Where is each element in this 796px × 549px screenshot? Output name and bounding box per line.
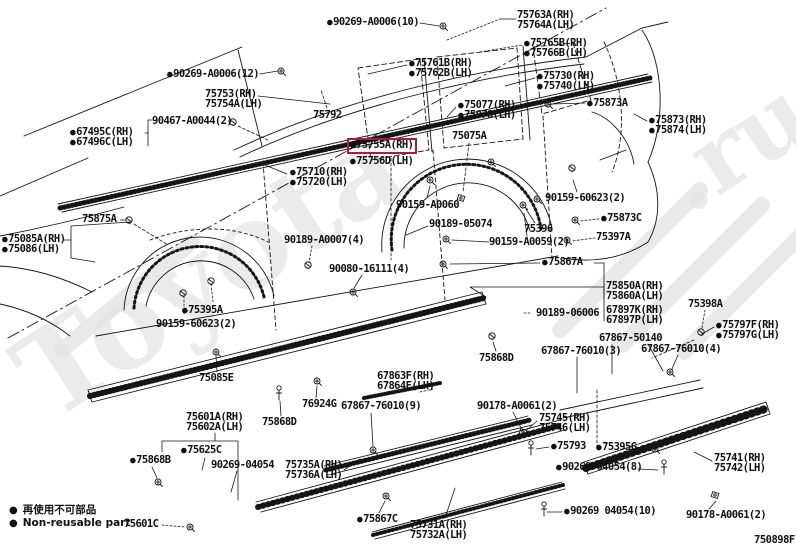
non-reusable-bullet-icon: ● xyxy=(182,305,187,316)
part-label[interactable]: 75397A xyxy=(596,232,630,242)
part-number: 90178-A0061(2) xyxy=(477,400,557,412)
non-reusable-bullet-icon: ● xyxy=(596,442,601,453)
part-label[interactable]: 75742(LH) xyxy=(714,463,766,473)
part-label[interactable]: 67867-76010(3) xyxy=(541,346,621,356)
part-number: 67867-76010(4) xyxy=(641,343,721,355)
part-number: 90189-05074 xyxy=(429,218,492,230)
part-number: 75868D xyxy=(262,416,296,428)
part-label[interactable]: ●75867C xyxy=(357,514,397,525)
part-number: 75085E xyxy=(199,372,233,384)
part-number: 75875A xyxy=(82,213,116,225)
part-label[interactable]: ●75867A xyxy=(542,257,582,268)
part-label[interactable]: ●90269-04054(8) xyxy=(556,462,642,473)
part-label[interactable]: ●75873C xyxy=(601,213,641,224)
part-number: 75075A xyxy=(452,130,486,142)
part-label[interactable]: 75754A(LH) xyxy=(205,99,262,109)
legend-text-en: Non-reusable part xyxy=(23,517,131,530)
part-number: 75395G xyxy=(602,441,636,453)
part-number: 75746(LH) xyxy=(539,422,591,434)
non-reusable-bullet-icon: ● xyxy=(409,68,414,79)
part-number: 75868B xyxy=(136,454,170,466)
part-number: 90269 04054(10) xyxy=(570,505,656,517)
part-label[interactable]: 75396 xyxy=(524,224,553,234)
part-number: 75736A(LH) xyxy=(285,469,342,481)
part-number: 75867C xyxy=(363,513,397,525)
part-number: 67864F(LH) xyxy=(377,380,434,392)
part-number: 75732A(LH) xyxy=(410,529,467,541)
non-reusable-bullet-icon: ● xyxy=(290,177,295,188)
figure-code: 750898F xyxy=(754,535,795,546)
part-label[interactable]: 67897P(LH) xyxy=(606,315,663,325)
part-label[interactable]: 75875A xyxy=(82,214,116,224)
part-label[interactable]: ●75797G(LH) xyxy=(716,330,779,341)
legend-row-jp: ● 再使用不可部品 xyxy=(9,504,130,517)
legend: ● 再使用不可部品 ● Non-reusable part xyxy=(9,504,130,530)
part-label[interactable]: 67867-76010(4) xyxy=(641,344,721,354)
part-number: 90178-A0061(2) xyxy=(686,509,766,521)
non-reusable-bullet-icon: ● xyxy=(564,506,569,517)
part-number: 90189-A0007(4) xyxy=(284,234,364,246)
non-reusable-bullet-icon: ● xyxy=(130,455,135,466)
part-number: 75874(LH) xyxy=(655,124,707,136)
non-reusable-bullet-icon: ● xyxy=(524,48,529,59)
parts-diagram: Toyota .ru xyxy=(0,0,796,549)
part-label[interactable]: ●75756D(LH) xyxy=(350,156,413,167)
part-number: 75602A(LH) xyxy=(186,421,243,433)
part-label[interactable]: ●75762B(LH) xyxy=(409,68,472,79)
part-number: 75395A xyxy=(188,304,222,316)
non-reusable-bullet-icon: ● xyxy=(9,517,18,530)
part-label[interactable]: 75398A xyxy=(688,299,722,309)
part-label[interactable]: ●75395A xyxy=(182,305,222,316)
part-label[interactable]: ●75625C xyxy=(181,445,221,456)
part-label[interactable]: 76924G xyxy=(302,399,336,409)
part-number: 90269-A0006(12) xyxy=(173,68,259,80)
part-label[interactable]: ●75395G xyxy=(596,442,636,453)
part-number: 75868D xyxy=(479,352,513,364)
part-label[interactable]: 75602A(LH) xyxy=(186,422,243,432)
part-label[interactable]: 75868D xyxy=(479,353,513,363)
part-number: 75396 xyxy=(524,223,553,235)
part-label[interactable]: 75736A(LH) xyxy=(285,470,342,480)
non-reusable-bullet-icon: ● xyxy=(357,514,362,525)
part-label[interactable]: ●90269-A0006(10) xyxy=(327,17,419,28)
part-label[interactable]: ●75793 xyxy=(551,441,586,452)
non-reusable-bullet-icon: ● xyxy=(601,213,606,224)
non-reusable-bullet-icon: ● xyxy=(542,257,547,268)
legend-text-jp: 再使用不可部品 xyxy=(23,504,97,517)
part-number: 90159-60623(2) xyxy=(545,192,625,204)
part-number: 75867A xyxy=(548,256,582,268)
non-reusable-bullet-icon: ● xyxy=(556,462,561,473)
part-number: 75756D(LH) xyxy=(356,155,413,167)
part-number: 75860A(LH) xyxy=(606,290,663,302)
part-number: 75625C xyxy=(187,444,221,456)
non-reusable-bullet-icon: ● xyxy=(458,110,463,121)
non-reusable-bullet-icon: ● xyxy=(537,81,542,92)
part-number: 75766B(LH) xyxy=(530,47,587,59)
part-number: 75398A xyxy=(688,298,722,310)
part-number: 90269-04054 xyxy=(211,459,274,471)
part-number: 90080-16111(4) xyxy=(329,263,409,275)
part-number: 75764A(LH) xyxy=(517,19,574,31)
part-label[interactable]: 90159-A0059(2) xyxy=(489,237,569,247)
part-label[interactable]: 75860A(LH) xyxy=(606,291,663,301)
part-number: 75793 xyxy=(557,440,586,452)
part-label[interactable]: ●90269 04054(10) xyxy=(564,506,656,517)
non-reusable-bullet-icon: ● xyxy=(350,156,355,167)
part-number: 75762B(LH) xyxy=(415,67,472,79)
part-number: 90467-A0044(2) xyxy=(152,115,232,127)
non-reusable-bullet-icon: ● xyxy=(587,98,592,109)
part-label[interactable]: ●75766B(LH) xyxy=(524,48,587,59)
part-label[interactable]: ●75740(LH) xyxy=(537,81,595,92)
part-label[interactable]: 67867-50140 xyxy=(599,333,662,343)
part-label[interactable]: 90189-06006 xyxy=(536,308,599,318)
part-number: 75797G(LH) xyxy=(722,329,779,341)
part-label[interactable]: ●75086(LH) xyxy=(2,244,60,255)
part-number: 75742(LH) xyxy=(714,462,766,474)
part-number: 75086(LH) xyxy=(8,243,60,255)
non-reusable-bullet-icon: ● xyxy=(2,244,7,255)
non-reusable-bullet-icon: ● xyxy=(327,17,332,28)
part-label[interactable]: 75746(LH) xyxy=(539,423,591,433)
part-label[interactable]: 67867-76010(9) xyxy=(341,401,421,411)
part-label[interactable]: 75085E xyxy=(199,373,233,383)
part-label[interactable]: 90159-60623(2) xyxy=(156,319,236,329)
part-label[interactable]: 90178-A0061(2) xyxy=(686,510,766,520)
part-label[interactable]: ●90269-A0006(12) xyxy=(167,69,259,80)
part-number: 90159-A0060 xyxy=(396,199,459,211)
part-label[interactable]: 90189-A0007(4) xyxy=(284,235,364,245)
non-reusable-bullet-icon: ● xyxy=(70,137,75,148)
part-number: 75720(LH) xyxy=(296,176,348,188)
part-label[interactable]: ●75874(LH) xyxy=(649,125,707,136)
non-reusable-bullet-icon: ● xyxy=(167,69,172,80)
non-reusable-bullet-icon: ● xyxy=(9,504,18,517)
part-number: 67867-76010(3) xyxy=(541,345,621,357)
part-label[interactable]: 90080-16111(4) xyxy=(329,264,409,274)
part-label[interactable]: ●75078(LH) xyxy=(458,110,516,121)
part-number: 90269-04054(8) xyxy=(562,461,642,473)
legend-row-en: ● Non-reusable part xyxy=(9,517,130,530)
part-label[interactable]: 75732A(LH) xyxy=(410,530,467,540)
part-label[interactable]: 75792 xyxy=(313,110,342,120)
part-number: 90159-60623(2) xyxy=(156,318,236,330)
non-reusable-bullet-icon: ● xyxy=(716,330,721,341)
part-label[interactable]: 90269-04054 xyxy=(211,460,274,470)
part-number: 67897P(LH) xyxy=(606,314,663,326)
part-number: 75755A(RH) xyxy=(356,139,413,151)
part-number: 67496C(LH) xyxy=(76,136,133,148)
part-label[interactable]: 90159-A0060 xyxy=(396,200,459,210)
part-number: 75792 xyxy=(313,109,342,121)
part-number: 75873A xyxy=(593,97,627,109)
part-number: 90159-A0059(2) xyxy=(489,236,569,248)
part-label[interactable]: 90178-A0061(2) xyxy=(477,401,557,411)
part-label[interactable]: ●75873A xyxy=(587,98,627,109)
part-label[interactable]: 75075A xyxy=(452,131,486,141)
part-label[interactable]: 90467-A0044(2) xyxy=(152,116,232,126)
part-number: 75078(LH) xyxy=(464,109,516,121)
part-number: 90269-A0006(10) xyxy=(333,16,419,28)
part-label[interactable]: 67864F(LH) xyxy=(377,381,434,391)
part-number: 75397A xyxy=(596,231,630,243)
part-number: 67867-76010(9) xyxy=(341,400,421,412)
part-label[interactable]: 90159-60623(2) xyxy=(545,193,625,203)
non-reusable-bullet-icon: ● xyxy=(551,441,556,452)
part-label[interactable]: 75868D xyxy=(262,417,296,427)
part-label[interactable]: 90189-05074 xyxy=(429,219,492,229)
part-number: 76924G xyxy=(302,398,336,410)
part-number: 90189-06006 xyxy=(536,307,599,319)
non-reusable-bullet-icon: ● xyxy=(350,140,355,151)
part-label[interactable]: ●75720(LH) xyxy=(290,177,348,188)
part-label[interactable]: ●75868B xyxy=(130,455,170,466)
part-label[interactable]: ●67496C(LH) xyxy=(70,137,133,148)
part-label-highlighted[interactable]: ●75755A(RH) xyxy=(347,138,417,154)
part-number: 75754A(LH) xyxy=(205,98,262,110)
non-reusable-bullet-icon: ● xyxy=(181,445,186,456)
part-label[interactable]: 75764A(LH) xyxy=(517,20,574,30)
part-number: 75873C xyxy=(607,212,641,224)
part-number: 75740(LH) xyxy=(543,80,595,92)
non-reusable-bullet-icon: ● xyxy=(649,125,654,136)
